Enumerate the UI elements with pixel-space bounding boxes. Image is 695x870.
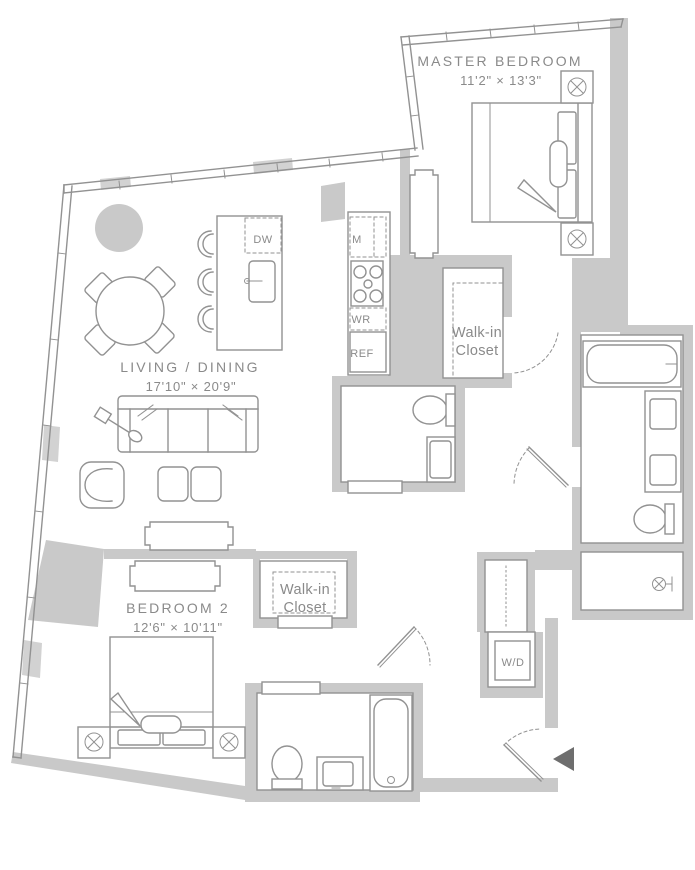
master-bedroom bbox=[410, 71, 593, 258]
floor-plan-drawing: MASTER BEDROOM 11'2" × 13'3" LIVING / DI… bbox=[0, 0, 695, 870]
closet-door-swing-arc bbox=[513, 333, 558, 373]
bedroom-2 bbox=[78, 561, 245, 758]
master-bedroom-label: MASTER BEDROOM bbox=[417, 53, 582, 69]
bedroom2-door bbox=[378, 627, 430, 667]
bedroom2-closet-label-line2: Closet bbox=[284, 600, 327, 616]
wardrobe bbox=[410, 170, 438, 258]
island-sink bbox=[245, 261, 276, 302]
master-closet-label-line1: Walk-in bbox=[452, 325, 502, 341]
bar-stools bbox=[198, 231, 213, 332]
microwave-label: M bbox=[352, 234, 362, 246]
dresser bbox=[130, 561, 220, 591]
double-vanity bbox=[645, 391, 681, 492]
column bbox=[95, 204, 143, 252]
dishwasher-label: DW bbox=[253, 234, 272, 246]
bedroom2-bed bbox=[110, 637, 213, 748]
living-dining-label: LIVING / DINING bbox=[120, 359, 260, 375]
pillow bbox=[141, 716, 181, 733]
dining-table bbox=[96, 277, 164, 345]
nightstand bbox=[213, 727, 245, 758]
master-walk-in-closet-room bbox=[443, 268, 503, 378]
entry-door[interactable] bbox=[504, 729, 543, 781]
vanity-sink bbox=[317, 757, 363, 790]
toilet bbox=[272, 746, 302, 789]
table-lamp-icon bbox=[568, 230, 586, 248]
master-bath-door bbox=[514, 447, 568, 487]
living-dining-dims: 17'10" × 20'9" bbox=[146, 379, 237, 394]
vanity-sink bbox=[427, 437, 455, 482]
washer-dryer-label: W/D bbox=[502, 657, 525, 669]
bathtub bbox=[583, 341, 681, 387]
toilet bbox=[413, 394, 455, 426]
nightstand bbox=[561, 223, 593, 255]
master-bed bbox=[472, 103, 592, 222]
table-lamp-icon bbox=[220, 733, 238, 751]
door-swing-arc bbox=[514, 448, 529, 486]
nightstand bbox=[78, 727, 110, 758]
shower-room bbox=[581, 552, 683, 610]
bedroom2-dims: 12'6" × 10'11" bbox=[133, 620, 223, 635]
entry-arrow-icon bbox=[553, 747, 574, 771]
bedroom2-closet-label-line1: Walk-in bbox=[280, 582, 330, 598]
master-bedroom-dims: 11'2" × 13'3" bbox=[460, 73, 542, 88]
door-swing-arc bbox=[414, 627, 430, 665]
toilet bbox=[634, 504, 674, 534]
table-lamp-icon bbox=[85, 733, 103, 751]
table-lamp-icon bbox=[568, 78, 586, 96]
door-swing-arc bbox=[504, 729, 541, 745]
stove bbox=[351, 261, 383, 306]
ottoman bbox=[191, 467, 221, 501]
bedroom2-label: BEDROOM 2 bbox=[126, 600, 230, 616]
floor-plan: MASTER BEDROOM 11'2" × 13'3" LIVING / DI… bbox=[0, 0, 695, 870]
nightstand bbox=[561, 71, 593, 103]
bathtub bbox=[370, 695, 412, 791]
master-closet-label-line2: Closet bbox=[456, 343, 499, 359]
refrigerator-label: REF bbox=[350, 348, 374, 360]
armchair bbox=[80, 462, 124, 508]
wine-refrigerator-label: WR bbox=[351, 314, 370, 326]
tv-console bbox=[145, 522, 233, 550]
ottoman bbox=[158, 467, 188, 501]
sofa bbox=[118, 396, 258, 452]
pillow bbox=[550, 141, 567, 187]
